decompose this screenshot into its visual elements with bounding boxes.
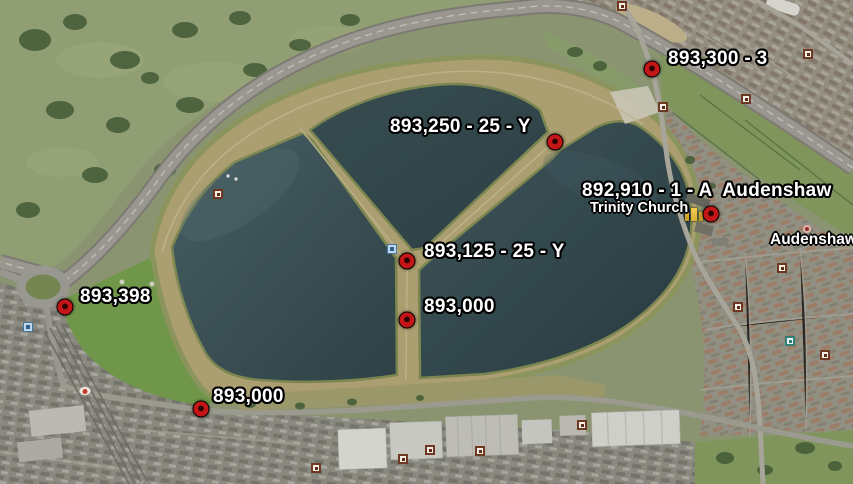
survey-square-icon[interactable] (213, 189, 223, 199)
survey-square-icon[interactable] (475, 446, 485, 456)
survey-square-icon[interactable] (311, 463, 321, 473)
placemark-label: 893,000 (213, 386, 284, 407)
survey-square-icon[interactable] (617, 1, 627, 11)
survey-square-icon[interactable] (658, 102, 668, 112)
white-oval-icon (79, 386, 92, 396)
survey-square-icon[interactable] (398, 454, 408, 464)
placemark-label: 893,000 (424, 296, 495, 317)
survey-square-icon[interactable] (733, 302, 743, 312)
placemark-icon[interactable] (399, 253, 416, 270)
placemark-label: 893,250 - 25 - Y (390, 116, 531, 137)
placemark-label: 893,300 - 3 (668, 48, 767, 69)
placemark-label: 893,398 (80, 286, 151, 307)
survey-square-icon[interactable] (820, 350, 830, 360)
placemark-icon[interactable] (644, 61, 661, 78)
blue-info-icon[interactable] (387, 244, 397, 254)
survey-square-icon[interactable] (777, 263, 787, 273)
place-name-label: Trinity Church (590, 200, 688, 216)
placemark-icon[interactable] (703, 206, 720, 223)
placemark-icon[interactable] (57, 299, 74, 316)
placemark-icon[interactable] (547, 134, 564, 151)
teal-square-icon[interactable] (785, 336, 795, 346)
place-name-label: Audenshaw (770, 231, 853, 249)
blue-info-icon[interactable] (23, 322, 33, 332)
placemark-overlay: 893,300 - 3 893,250 - 25 - Y 892,910 - 1… (0, 0, 853, 484)
survey-square-icon[interactable] (741, 94, 751, 104)
survey-square-icon[interactable] (425, 445, 435, 455)
placemark-icon[interactable] (399, 312, 416, 329)
placemark-label: 892,910 - 1 - A Audenshaw (582, 180, 832, 201)
map-canvas[interactable]: 893,300 - 3 893,250 - 25 - Y 892,910 - 1… (0, 0, 853, 484)
placemark-icon[interactable] (193, 401, 210, 418)
survey-square-icon[interactable] (577, 420, 587, 430)
placemark-label: 893,125 - 25 - Y (424, 241, 565, 262)
survey-square-icon[interactable] (803, 49, 813, 59)
